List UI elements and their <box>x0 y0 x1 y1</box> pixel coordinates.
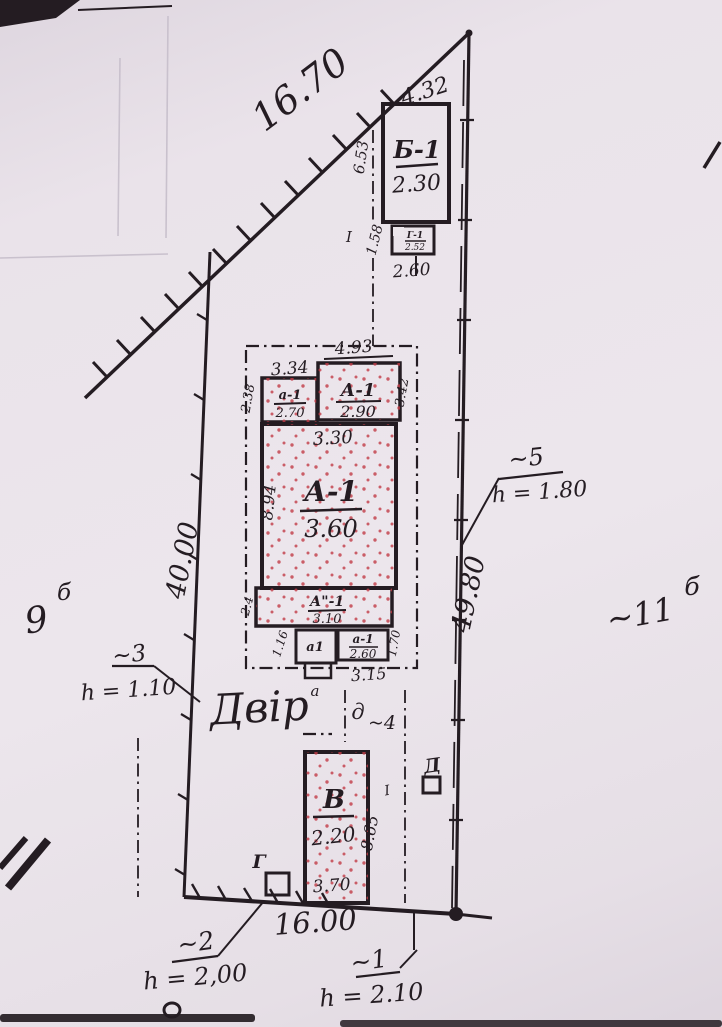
annex-left-dim: 1.16 <box>269 629 291 659</box>
annex-right-dim-bottom: 3.15 <box>350 664 387 685</box>
fence-note-2: ~2 h = 2,00 <box>142 901 264 996</box>
room-tr-dim-top: 4.93 <box>333 337 373 360</box>
annex-right-label: а-1 <box>352 632 373 646</box>
main-label: А-1 <box>302 475 358 508</box>
annex-left-label: а1 <box>306 640 323 655</box>
yard-label: Двір <box>207 680 310 734</box>
b1-value: 2.30 <box>390 170 442 198</box>
v-value: 2.20 <box>309 822 357 851</box>
neighbor-left-num: 9 <box>22 599 50 643</box>
dim-right: 49.80 <box>445 553 492 636</box>
shed-d: Д <box>421 754 443 793</box>
b1-dim-side: 1.58 <box>364 223 387 257</box>
room-tl-dim-top: 3.34 <box>270 358 309 381</box>
gate-number: ~4 <box>368 712 396 734</box>
summer-label: Г-1 <box>406 231 423 241</box>
main-value: 3.60 <box>304 515 357 543</box>
annex-right-value: 2.60 <box>349 647 377 661</box>
neighbor-right-sup: б <box>684 572 700 601</box>
fence-2-height: h = 2,00 <box>142 959 248 996</box>
neighbor-left-sup: б <box>57 580 72 606</box>
fence-1-height: h = 2.10 <box>318 977 424 1012</box>
house-cluster: 3.34 а-1 2.70 2.38 4.93 А-1 2.90 3.42 3.… <box>238 337 417 700</box>
porch-label: а <box>311 682 320 700</box>
strip-value: 3.10 <box>313 612 342 627</box>
room-tr-value: 2.90 <box>339 402 376 421</box>
b1-dim-bottom: 2.60 <box>391 260 431 283</box>
dim-bottom: 16.00 <box>273 902 358 942</box>
fence-5-height: h = 1.80 <box>491 477 588 509</box>
shed-g: Г <box>251 851 289 895</box>
main-dim-left: 8.94 <box>257 484 280 521</box>
neighbor-right: ~11 б <box>604 572 701 639</box>
fence-note-5: ~5 h = 1.80 <box>462 442 588 545</box>
fence-3-height: h = 1.10 <box>80 675 177 707</box>
shed-d-label: Д <box>421 754 443 778</box>
neighbor-right-num: ~11 <box>604 590 677 639</box>
strip-label: А"-1 <box>309 594 344 610</box>
summer-value: 2.52 <box>404 243 425 253</box>
room-tl-label: а-1 <box>279 388 302 403</box>
fence-5-id: ~5 <box>507 442 545 474</box>
site-plan-svg: 16.70 4.32 40.00 49.80 16.00 Б-1 2.30 6.… <box>0 0 722 1027</box>
strip-dim-left: 2.4 <box>238 595 257 618</box>
neighbor-left: 9 б <box>22 580 72 643</box>
shed-g-label: Г <box>251 851 267 873</box>
main-dim-top: 3.30 <box>312 427 353 450</box>
gate-letter: д <box>351 700 364 724</box>
room-tl-value: 2.70 <box>275 406 305 421</box>
v-label: В <box>322 785 345 815</box>
room-tr-label: А-1 <box>339 380 376 401</box>
fence-2-id: ~2 <box>176 926 217 960</box>
b1-label: Б-1 <box>392 135 440 164</box>
room-tl-dim-left: 2.38 <box>238 383 258 415</box>
dim-top: 16.70 <box>243 39 356 140</box>
scanned-site-plan: 16.70 4.32 40.00 49.80 16.00 Б-1 2.30 6.… <box>0 0 722 1027</box>
b1-dim-left: 6.53 <box>350 140 372 176</box>
fence-1-id: ~1 <box>349 944 390 978</box>
v-dim-bottom: 3.70 <box>312 875 351 898</box>
fence-note-3: ~3 h = 1.10 <box>80 640 200 706</box>
station-mark-v: I <box>382 783 392 800</box>
station-mark-top: I <box>345 228 353 246</box>
building-v: В 2.20 3.70 8.65 I <box>305 752 392 903</box>
